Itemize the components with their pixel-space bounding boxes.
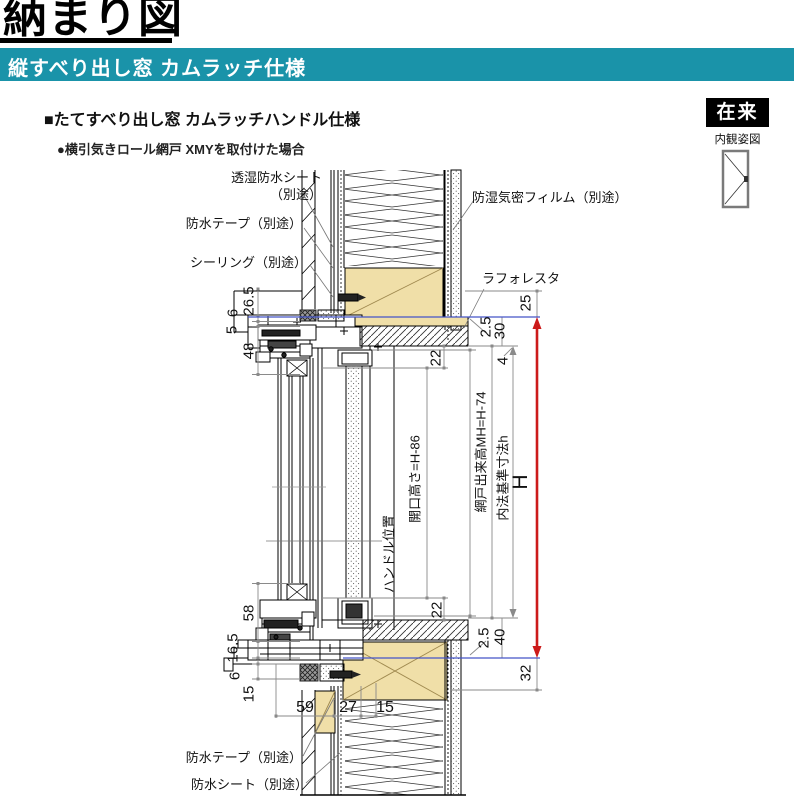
sash-bottom-mechanism xyxy=(256,600,316,644)
dim-top-clearance: 25 xyxy=(518,295,535,312)
callout-breathable-sheet: 透湿防水シート （別途） xyxy=(180,170,322,204)
roll-screen xyxy=(338,350,372,628)
dim-bottom-clearance: 32 xyxy=(518,665,535,682)
dim-head-frame: 48 xyxy=(241,343,258,360)
label-screen-height: 網戸出来高MH=H-74 xyxy=(471,392,490,513)
dim-head-lip: 5 xyxy=(224,326,241,334)
dim-opening-bottom: 22 xyxy=(429,602,446,619)
dim-sill-frame: 58 xyxy=(241,605,258,622)
section-drawing xyxy=(0,0,800,800)
dim-top-inner: 30 xyxy=(492,323,509,340)
dim-opening-top: 22 xyxy=(428,350,445,367)
dim-sill-lower: 15 xyxy=(241,686,258,703)
head-trim-laforesta xyxy=(360,326,468,346)
label-opening-height: 開口高さ=H-86 xyxy=(405,435,424,523)
callout-vapor-film: 防湿気密フィルム（別途） xyxy=(472,190,627,207)
dim-top-step: 4 xyxy=(495,357,512,365)
callout-waterproof-tape-bottom: 防水テープ（別途） xyxy=(162,750,302,767)
callout-laforesta: ラフォレスタ xyxy=(482,271,560,288)
dim-sill-gap: 6 xyxy=(227,672,244,680)
callout-waterproof-tape-top: 防水テープ（別途） xyxy=(160,216,302,233)
dim-bottom-small: 2.5 xyxy=(476,628,493,649)
callout-waterproof-sheet-bottom: 防水シート（別途） xyxy=(168,777,308,794)
page: 納まり図 縦すべり出し窓 カムラッチ仕様 ■たてすべり出し窓 カムラッチハンドル… xyxy=(0,0,800,800)
dim-bottom-inner: 40 xyxy=(492,629,509,646)
dim-width-outer: 59 xyxy=(296,699,314,717)
callout-sealing: シーリング（別途） xyxy=(165,255,307,272)
dim-head-offset: 26.5 xyxy=(241,286,258,315)
dim-sill-offset: 16.5 xyxy=(225,633,242,662)
sash-top-mechanism xyxy=(256,325,316,376)
sill-trim-laforesta xyxy=(363,620,468,640)
label-handle-position: ハンドル位置 xyxy=(379,515,398,593)
overall-height-dimension xyxy=(533,317,542,658)
label-overall-height: H xyxy=(509,474,533,489)
dim-width-mid: 27 xyxy=(339,699,357,717)
dim-width-inner: 15 xyxy=(376,699,394,717)
dim-head-gap: 6 xyxy=(225,309,242,317)
